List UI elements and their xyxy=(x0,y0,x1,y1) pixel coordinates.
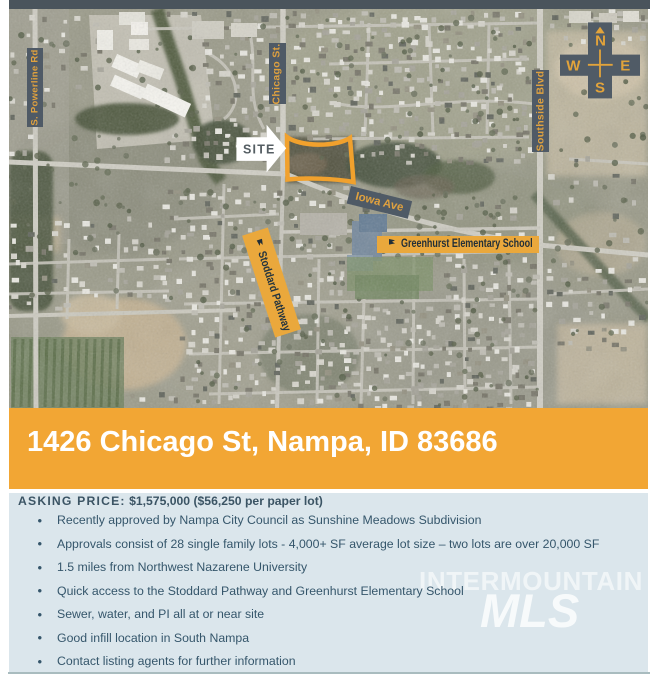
svg-text:N: N xyxy=(595,33,606,50)
svg-text:S: S xyxy=(595,80,605,97)
svg-text:W: W xyxy=(566,58,581,75)
svg-text:E: E xyxy=(620,57,630,74)
svg-text:SITE: SITE xyxy=(243,142,276,156)
